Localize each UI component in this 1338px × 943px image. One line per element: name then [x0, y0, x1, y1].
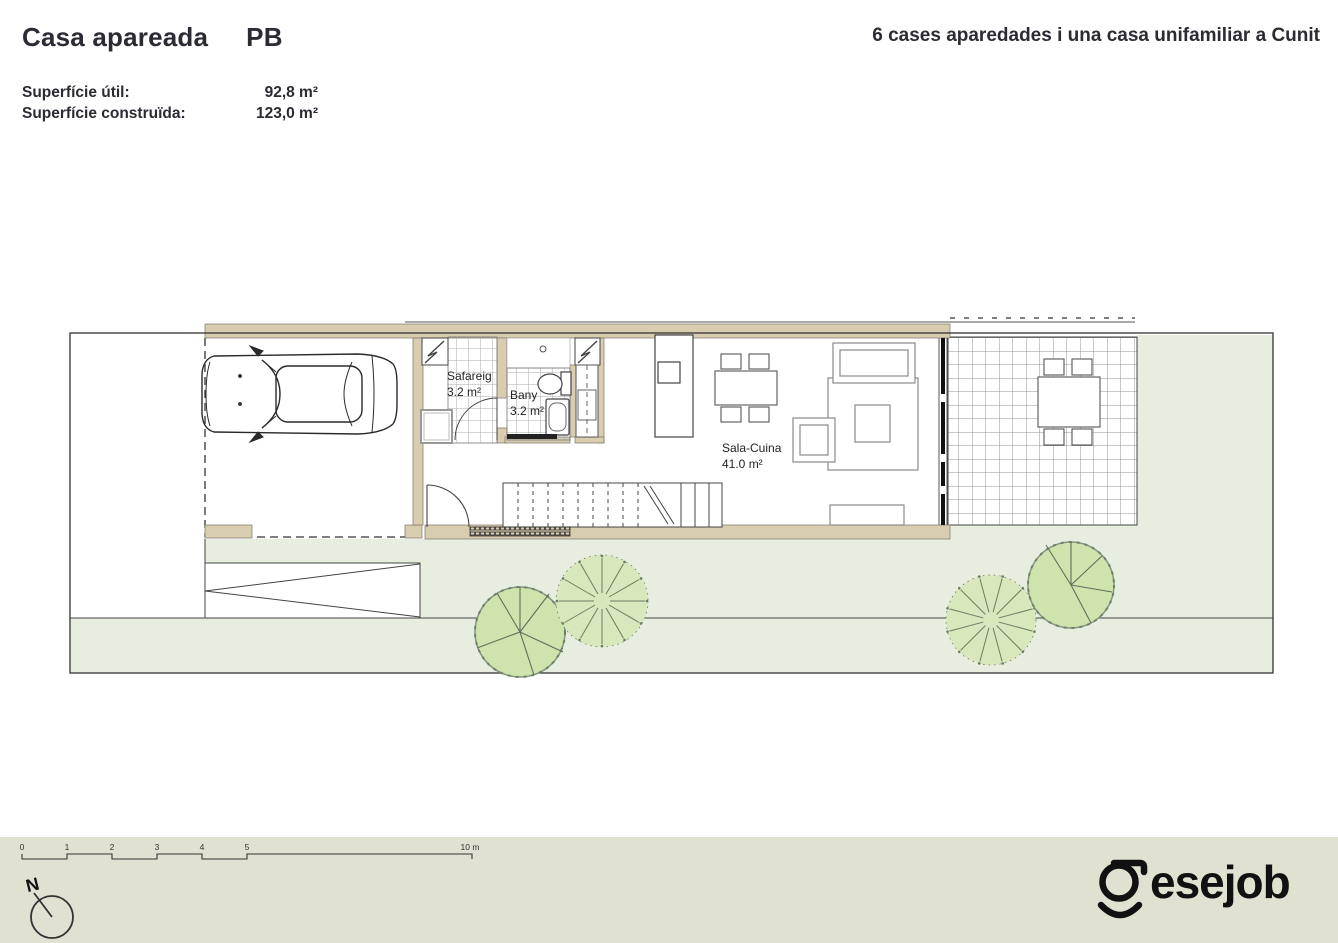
coffee-table-icon [855, 405, 890, 442]
door-mat [830, 505, 904, 525]
bany-threshold [507, 434, 557, 439]
scale-tick-label: 0 [20, 842, 25, 852]
toilet-icon [538, 372, 571, 395]
threshold-grate [470, 527, 570, 536]
scale-tick-label: 4 [200, 842, 205, 852]
closet-column [576, 365, 598, 437]
scale-end-label: 10 m [461, 842, 480, 852]
scale-tick-label: 2 [110, 842, 115, 852]
gesejob-g-smile-icon [1101, 863, 1144, 915]
north-label: N [24, 874, 41, 897]
vent-shaft-icon [422, 338, 448, 365]
room-area: 3.2 m² [447, 385, 481, 399]
room-label: Sala-Cuina [722, 441, 782, 455]
room-area: 41.0 m² [722, 457, 763, 471]
bathtub-icon [546, 399, 569, 435]
room-area: 3.2 m² [510, 404, 544, 418]
tree-icon [946, 575, 1036, 665]
washing-machine-icon [421, 410, 452, 443]
north-arrow-icon: N [10, 855, 105, 943]
scale-tick-label: 5 [245, 842, 250, 852]
logo-text: esejob [1150, 856, 1290, 908]
sink-icon [658, 362, 680, 383]
floor-plan-svg: Safareig 3.2 m² Bany 3.2 m² [0, 0, 1338, 780]
stairs [503, 483, 722, 527]
scale-tick-label: 1 [65, 842, 70, 852]
kitchen-island [655, 335, 693, 437]
gesejob-logo: esejob [1092, 851, 1322, 941]
scale-tick-label: 3 [155, 842, 160, 852]
floor-plan: Safareig 3.2 m² Bany 3.2 m² [0, 0, 1338, 780]
driveway-ramp [205, 563, 420, 618]
tree-icon [1028, 542, 1114, 628]
room-label: Bany [510, 388, 537, 402]
footer-band: 0 1 2 3 4 5 10 m N esejob [0, 837, 1338, 943]
tree-icon [475, 587, 565, 677]
tree-icon [556, 555, 649, 648]
room-label: Safareig [447, 369, 492, 383]
